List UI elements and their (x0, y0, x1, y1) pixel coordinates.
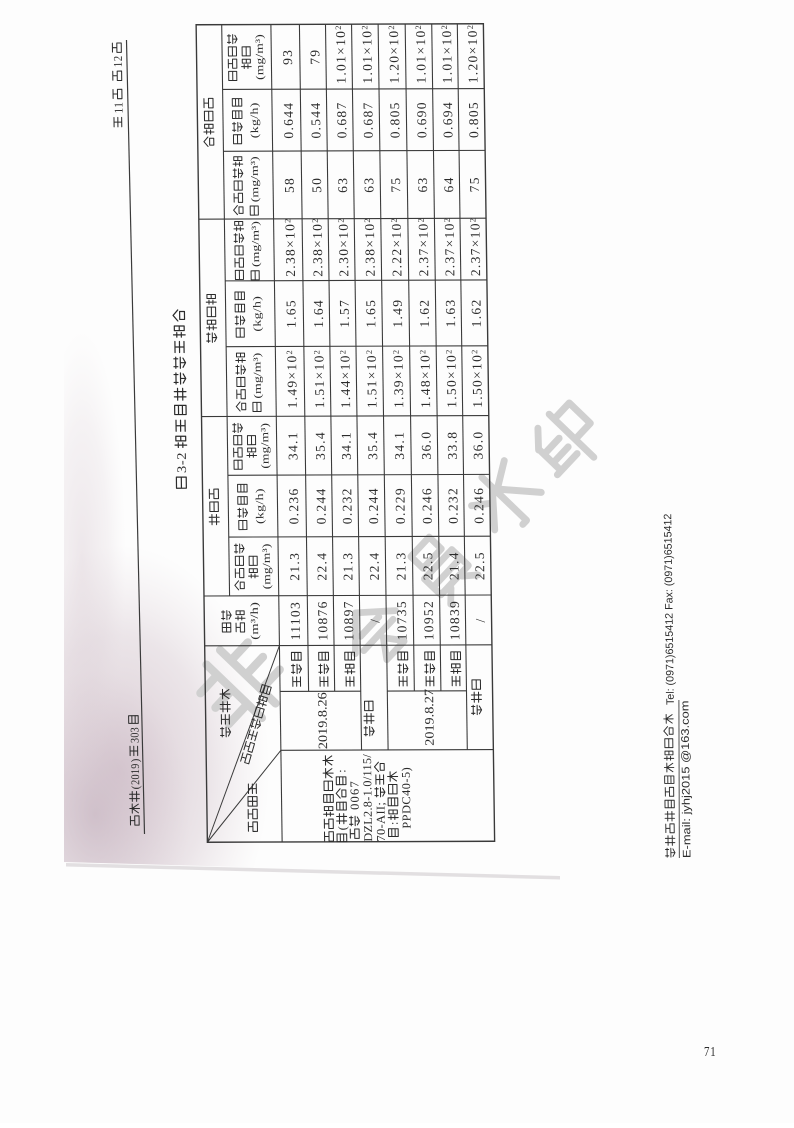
svg-text:(mg/m³): (mg/m³) (250, 156, 262, 203)
svg-text:12: 12 (111, 55, 125, 67)
svg-text:(mg/m³): (mg/m³) (259, 423, 272, 469)
svg-text:2019: 2019 (128, 763, 142, 784)
svg-text:0.244: 0.244 (366, 487, 381, 524)
svg-text:0.690: 0.690 (414, 101, 429, 138)
svg-text:3-2: 3-2 (174, 452, 189, 473)
svg-text:1.57: 1.57 (337, 299, 352, 328)
svg-text::: : (334, 769, 348, 772)
svg-text:0.644: 0.644 (281, 102, 296, 139)
svg-text:1.51×102: 1.51×102 (364, 350, 380, 408)
svg-text:50: 50 (309, 177, 324, 193)
svg-text:1.62: 1.62 (417, 299, 432, 328)
svg-text:1.62: 1.62 (469, 298, 484, 327)
svg-text:21.3: 21.3 (287, 552, 302, 581)
svg-text:10952: 10952 (421, 600, 436, 640)
svg-text:71: 71 (704, 1044, 717, 1059)
svg-text:1.65: 1.65 (363, 299, 378, 328)
svg-text:0.232: 0.232 (445, 487, 460, 524)
svg-text:34.1: 34.1 (285, 431, 300, 460)
svg-text:PPDC40-5): PPDC40-5) (399, 767, 414, 829)
svg-text:1.44×102: 1.44×102 (337, 350, 353, 408)
svg-text:(mg/m³): (mg/m³) (261, 543, 274, 589)
svg-text:1.01×102: 1.01×102 (333, 26, 349, 84)
svg-text:33.8: 33.8 (445, 431, 460, 460)
svg-text:0.687: 0.687 (334, 101, 349, 138)
svg-text:75: 75 (467, 176, 482, 192)
svg-text:21.3: 21.3 (340, 552, 355, 581)
svg-text:(: ( (130, 785, 142, 789)
svg-text:(kg/h): (kg/h) (251, 296, 263, 332)
svg-text:2.38×102: 2.38×102 (310, 219, 326, 277)
svg-text:(m³/h): (m³/h) (249, 602, 261, 640)
svg-text:21.4: 21.4 (446, 551, 461, 580)
svg-text:11: 11 (111, 102, 125, 114)
svg-text:2.22×102: 2.22×102 (389, 218, 405, 276)
svg-text:0.544: 0.544 (308, 102, 323, 139)
svg-text:2.37×102: 2.37×102 (416, 218, 432, 276)
svg-text:E-mail: jyhj2015 @163.com: E-mail: jyhj2015 @163.com (679, 700, 693, 858)
svg-text:35.4: 35.4 (365, 431, 380, 460)
svg-text:0.805: 0.805 (466, 101, 481, 138)
svg-text:0.229: 0.229 (392, 487, 407, 524)
svg-text:1.49×102: 1.49×102 (284, 350, 300, 408)
svg-text:0.687: 0.687 (360, 101, 375, 138)
svg-text:1.01×102: 1.01×102 (359, 25, 375, 83)
svg-text:58: 58 (282, 177, 297, 193)
svg-text:0.236: 0.236 (286, 487, 301, 524)
svg-text:303: 303 (127, 727, 141, 743)
svg-text:36.0: 36.0 (470, 431, 485, 460)
svg-text::: : (387, 822, 401, 825)
svg-text:10897: 10897 (341, 600, 356, 640)
svg-text:34.1: 34.1 (339, 431, 354, 460)
svg-text:1.50×102: 1.50×102 (469, 350, 485, 408)
svg-text:22.5: 22.5 (420, 551, 435, 580)
svg-text:63: 63 (335, 177, 350, 193)
svg-text:(kg/h): (kg/h) (249, 102, 261, 138)
svg-text:1.49: 1.49 (390, 299, 405, 328)
svg-text:22.4: 22.4 (367, 552, 382, 581)
svg-text:0.232: 0.232 (339, 487, 354, 524)
svg-text:0.244: 0.244 (313, 487, 328, 524)
svg-text:/: / (367, 618, 382, 623)
svg-text:22.4: 22.4 (314, 552, 329, 581)
svg-text:2.38×102: 2.38×102 (362, 218, 378, 276)
svg-text:1.20×102: 1.20×102 (465, 25, 481, 83)
svg-text:2.30×102: 2.30×102 (336, 218, 352, 276)
svg-text:63: 63 (361, 177, 376, 193)
svg-text:10735: 10735 (394, 600, 409, 640)
svg-text:22.5: 22.5 (472, 551, 487, 580)
svg-text:1.64: 1.64 (311, 299, 326, 328)
svg-text:11103: 11103 (288, 601, 303, 640)
svg-text:(mg/m³): (mg/m³) (251, 220, 263, 267)
svg-text:36.0: 36.0 (419, 431, 434, 460)
svg-text:0.805: 0.805 (387, 101, 402, 138)
svg-text:1.50×102: 1.50×102 (443, 350, 459, 408)
svg-text:/: / (473, 617, 488, 622)
svg-text:79: 79 (307, 49, 322, 65)
svg-text:0.246: 0.246 (471, 487, 486, 524)
svg-text:1.65: 1.65 (283, 299, 298, 328)
svg-text:64: 64 (441, 176, 456, 192)
svg-text:93: 93 (280, 49, 295, 65)
svg-text:21.3: 21.3 (393, 551, 408, 580)
svg-text:2.38×102: 2.38×102 (282, 219, 298, 277)
svg-text:2019.8.27: 2019.8.27 (422, 688, 437, 746)
svg-text:(: ( (335, 826, 349, 830)
svg-text:2019.8.26: 2019.8.26 (315, 692, 330, 750)
svg-text:DZL2.8-1.0/115/: DZL2.8-1.0/115/ (360, 754, 375, 842)
svg-text:1.51×102: 1.51×102 (311, 350, 327, 408)
svg-text:0.246: 0.246 (419, 487, 434, 524)
svg-text:): ) (130, 758, 142, 762)
svg-text:70-AII;: 70-AII; (374, 802, 388, 842)
svg-text:63: 63 (415, 176, 430, 192)
svg-text:0.694: 0.694 (440, 101, 455, 138)
svg-text:1.01×102: 1.01×102 (413, 25, 429, 83)
svg-text:1.48×102: 1.48×102 (417, 350, 433, 408)
svg-text:10839: 10839 (447, 600, 462, 640)
svg-text:10876: 10876 (315, 600, 330, 640)
svg-text:35.4: 35.4 (313, 431, 328, 460)
svg-text:(mg/m³): (mg/m³) (254, 34, 267, 80)
svg-text:2.37×102: 2.37×102 (442, 218, 458, 276)
svg-text:75: 75 (388, 176, 403, 192)
svg-text:34.1: 34.1 (392, 431, 407, 460)
svg-text:2.37×102: 2.37×102 (467, 218, 483, 276)
svg-text:(kg/h): (kg/h) (254, 488, 266, 524)
svg-text:1.01×102: 1.01×102 (439, 25, 455, 83)
svg-text:(mg/m³): (mg/m³) (252, 352, 264, 399)
svg-text:1.20×102: 1.20×102 (386, 25, 402, 83)
svg-text:1.63: 1.63 (443, 299, 458, 328)
svg-text:1.39×102: 1.39×102 (391, 350, 407, 408)
